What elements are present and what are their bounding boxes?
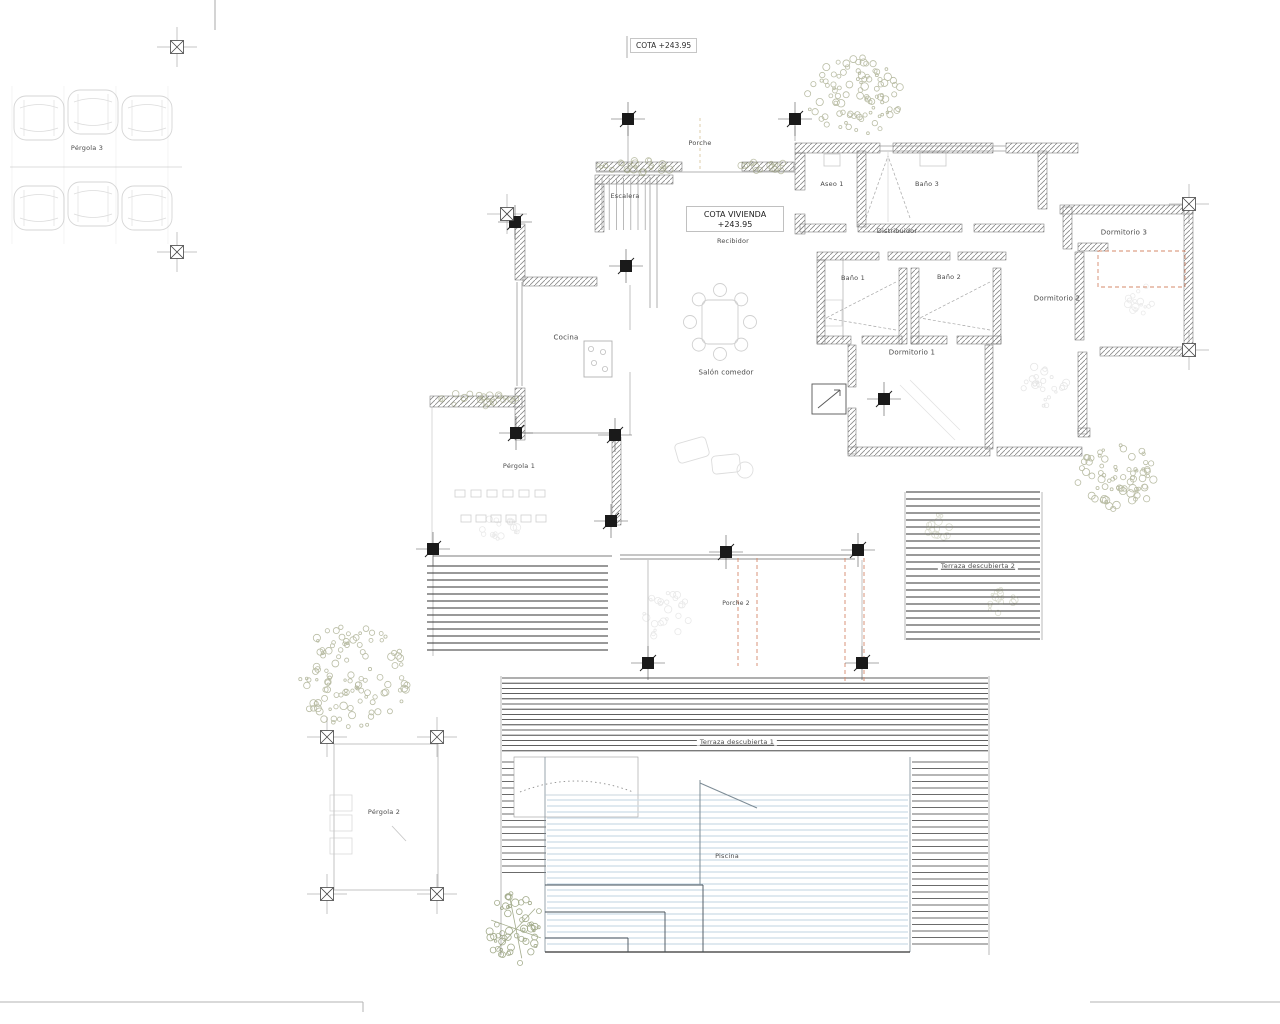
room-label-pergola2: Pérgola 2: [368, 809, 400, 816]
pool: [514, 757, 910, 952]
car-icon: [14, 186, 64, 230]
column-marker: [841, 533, 875, 567]
column-marker: [594, 504, 628, 538]
room-label-dormitorio2: Dormitorio 2: [1034, 296, 1080, 303]
column-marker: [709, 535, 743, 569]
room-label-cocina: Cocina: [554, 335, 579, 342]
tree-icon: [1021, 363, 1070, 407]
tree-icon: [1124, 284, 1154, 315]
cota-vivienda-line1: COTA VIVIENDA: [687, 210, 783, 219]
room-label-distribuidor: Distribuidor: [877, 228, 917, 235]
car-icon: [68, 90, 118, 134]
walls-layer: [430, 143, 1193, 525]
room-label-recibidor: Recibidor: [717, 238, 749, 245]
column-marker: [867, 382, 901, 416]
room-label-salon: Salón comedor: [698, 370, 753, 377]
floorplan-canvas: [0, 0, 1280, 1024]
corner-marker: [157, 232, 197, 272]
room-label-dormitorio3: Dormitorio 3: [1101, 230, 1147, 237]
shaft-arrow-symbol: [812, 384, 846, 414]
room-label-bano2: Baño 2: [937, 274, 961, 281]
floorplan-sheet: COTA +243.95 COTA VIVIENDA +243.95 Porch…: [0, 0, 1280, 1024]
column-marker: [416, 532, 450, 566]
tree-icon: [299, 625, 410, 728]
room-label-pergola3: Pérgola 3: [71, 145, 103, 152]
corner-marker: [417, 717, 457, 757]
room-label-piscina: Piscina: [715, 853, 739, 860]
column-marker: [631, 646, 665, 680]
carport-mini-plan: [10, 86, 182, 244]
cota-vivienda-line2: +243.95: [687, 220, 783, 229]
car-icon: [14, 96, 64, 140]
corner-marker: [417, 874, 457, 914]
dining-set-sketch: [684, 284, 757, 361]
tree-icon: [988, 587, 1018, 615]
kitchen-island-sketch: [584, 341, 612, 377]
deck-terrace-lines: [427, 492, 1040, 944]
vegetation-layer: [299, 55, 1157, 966]
column-marker: [598, 418, 632, 452]
room-label-dormitorio1: Dormitorio 1: [889, 350, 935, 357]
tree-icon: [643, 591, 692, 639]
car-icon: [68, 182, 118, 226]
room-label-aseo1: Aseo 1: [820, 181, 843, 188]
corner-marker: [307, 874, 347, 914]
column-marker: [611, 102, 645, 136]
accent-dashed-lines: [738, 251, 1185, 682]
column-marker: [609, 249, 643, 283]
corner-marker: [1169, 184, 1209, 224]
cota-vivienda-box: COTA VIVIENDA +243.95: [686, 206, 784, 232]
tree-icon: [486, 892, 541, 966]
room-label-bano3: Baño 3: [915, 181, 939, 188]
room-label-bano1: Baño 1: [841, 275, 865, 282]
tree-icon: [805, 55, 904, 135]
car-icon: [122, 186, 172, 230]
plan-title: COTA +243.95: [630, 38, 697, 53]
room-label-terraza2: Terraza descubierta 2: [938, 563, 1018, 570]
room-label-terraza1: Terraza descubierta 1: [697, 739, 777, 746]
room-label-escalera: Escalera: [610, 193, 639, 200]
column-marker: [499, 416, 533, 450]
column-marker: [778, 102, 812, 136]
corner-marker: [307, 717, 347, 757]
car-icon: [122, 96, 172, 140]
corner-marker: [1169, 330, 1209, 370]
tree-icon: [1075, 444, 1157, 512]
room-label-pergola1: Pérgola 1: [503, 463, 535, 470]
room-label-porche2: Porche 2: [722, 601, 750, 607]
column-marker: [845, 646, 879, 680]
corner-marker: [157, 27, 197, 67]
room-label-porche: Porche: [688, 140, 711, 147]
